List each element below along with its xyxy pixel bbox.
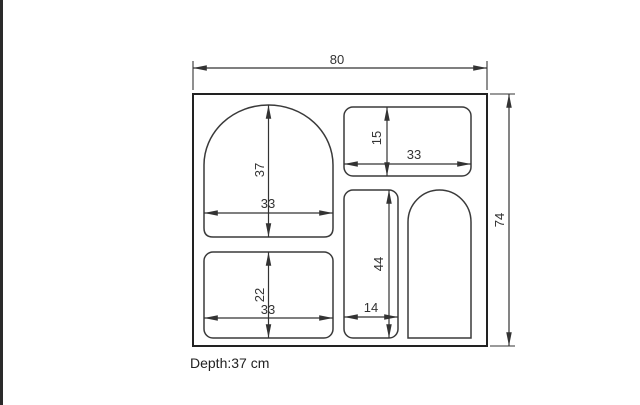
label-bottom-left-width: 33 <box>261 302 275 317</box>
label-overall-height: 74 <box>492 213 507 227</box>
compartment-right-arch-niche <box>408 190 471 338</box>
label-bottom-left-height: 22 <box>252 288 267 302</box>
label-overall-width: 80 <box>330 52 344 67</box>
compartment-top-right-shelf <box>344 107 471 176</box>
label-middle-height: 44 <box>371 257 386 271</box>
dimension-drawing: 80 74 37 33 15 33 22 33 44 14 Depth:37 c… <box>0 0 640 405</box>
label-top-right-width: 33 <box>407 147 421 162</box>
label-middle-width: 14 <box>364 300 378 315</box>
drawing-canvas: 80 74 37 33 15 33 22 33 44 14 Depth:37 c… <box>0 0 640 405</box>
depth-note: Depth:37 cm <box>190 355 269 371</box>
label-arch-height: 37 <box>252 163 267 177</box>
cabinet-outline <box>193 94 487 346</box>
label-arch-width: 33 <box>261 196 275 211</box>
label-top-right-height: 15 <box>369 131 384 145</box>
